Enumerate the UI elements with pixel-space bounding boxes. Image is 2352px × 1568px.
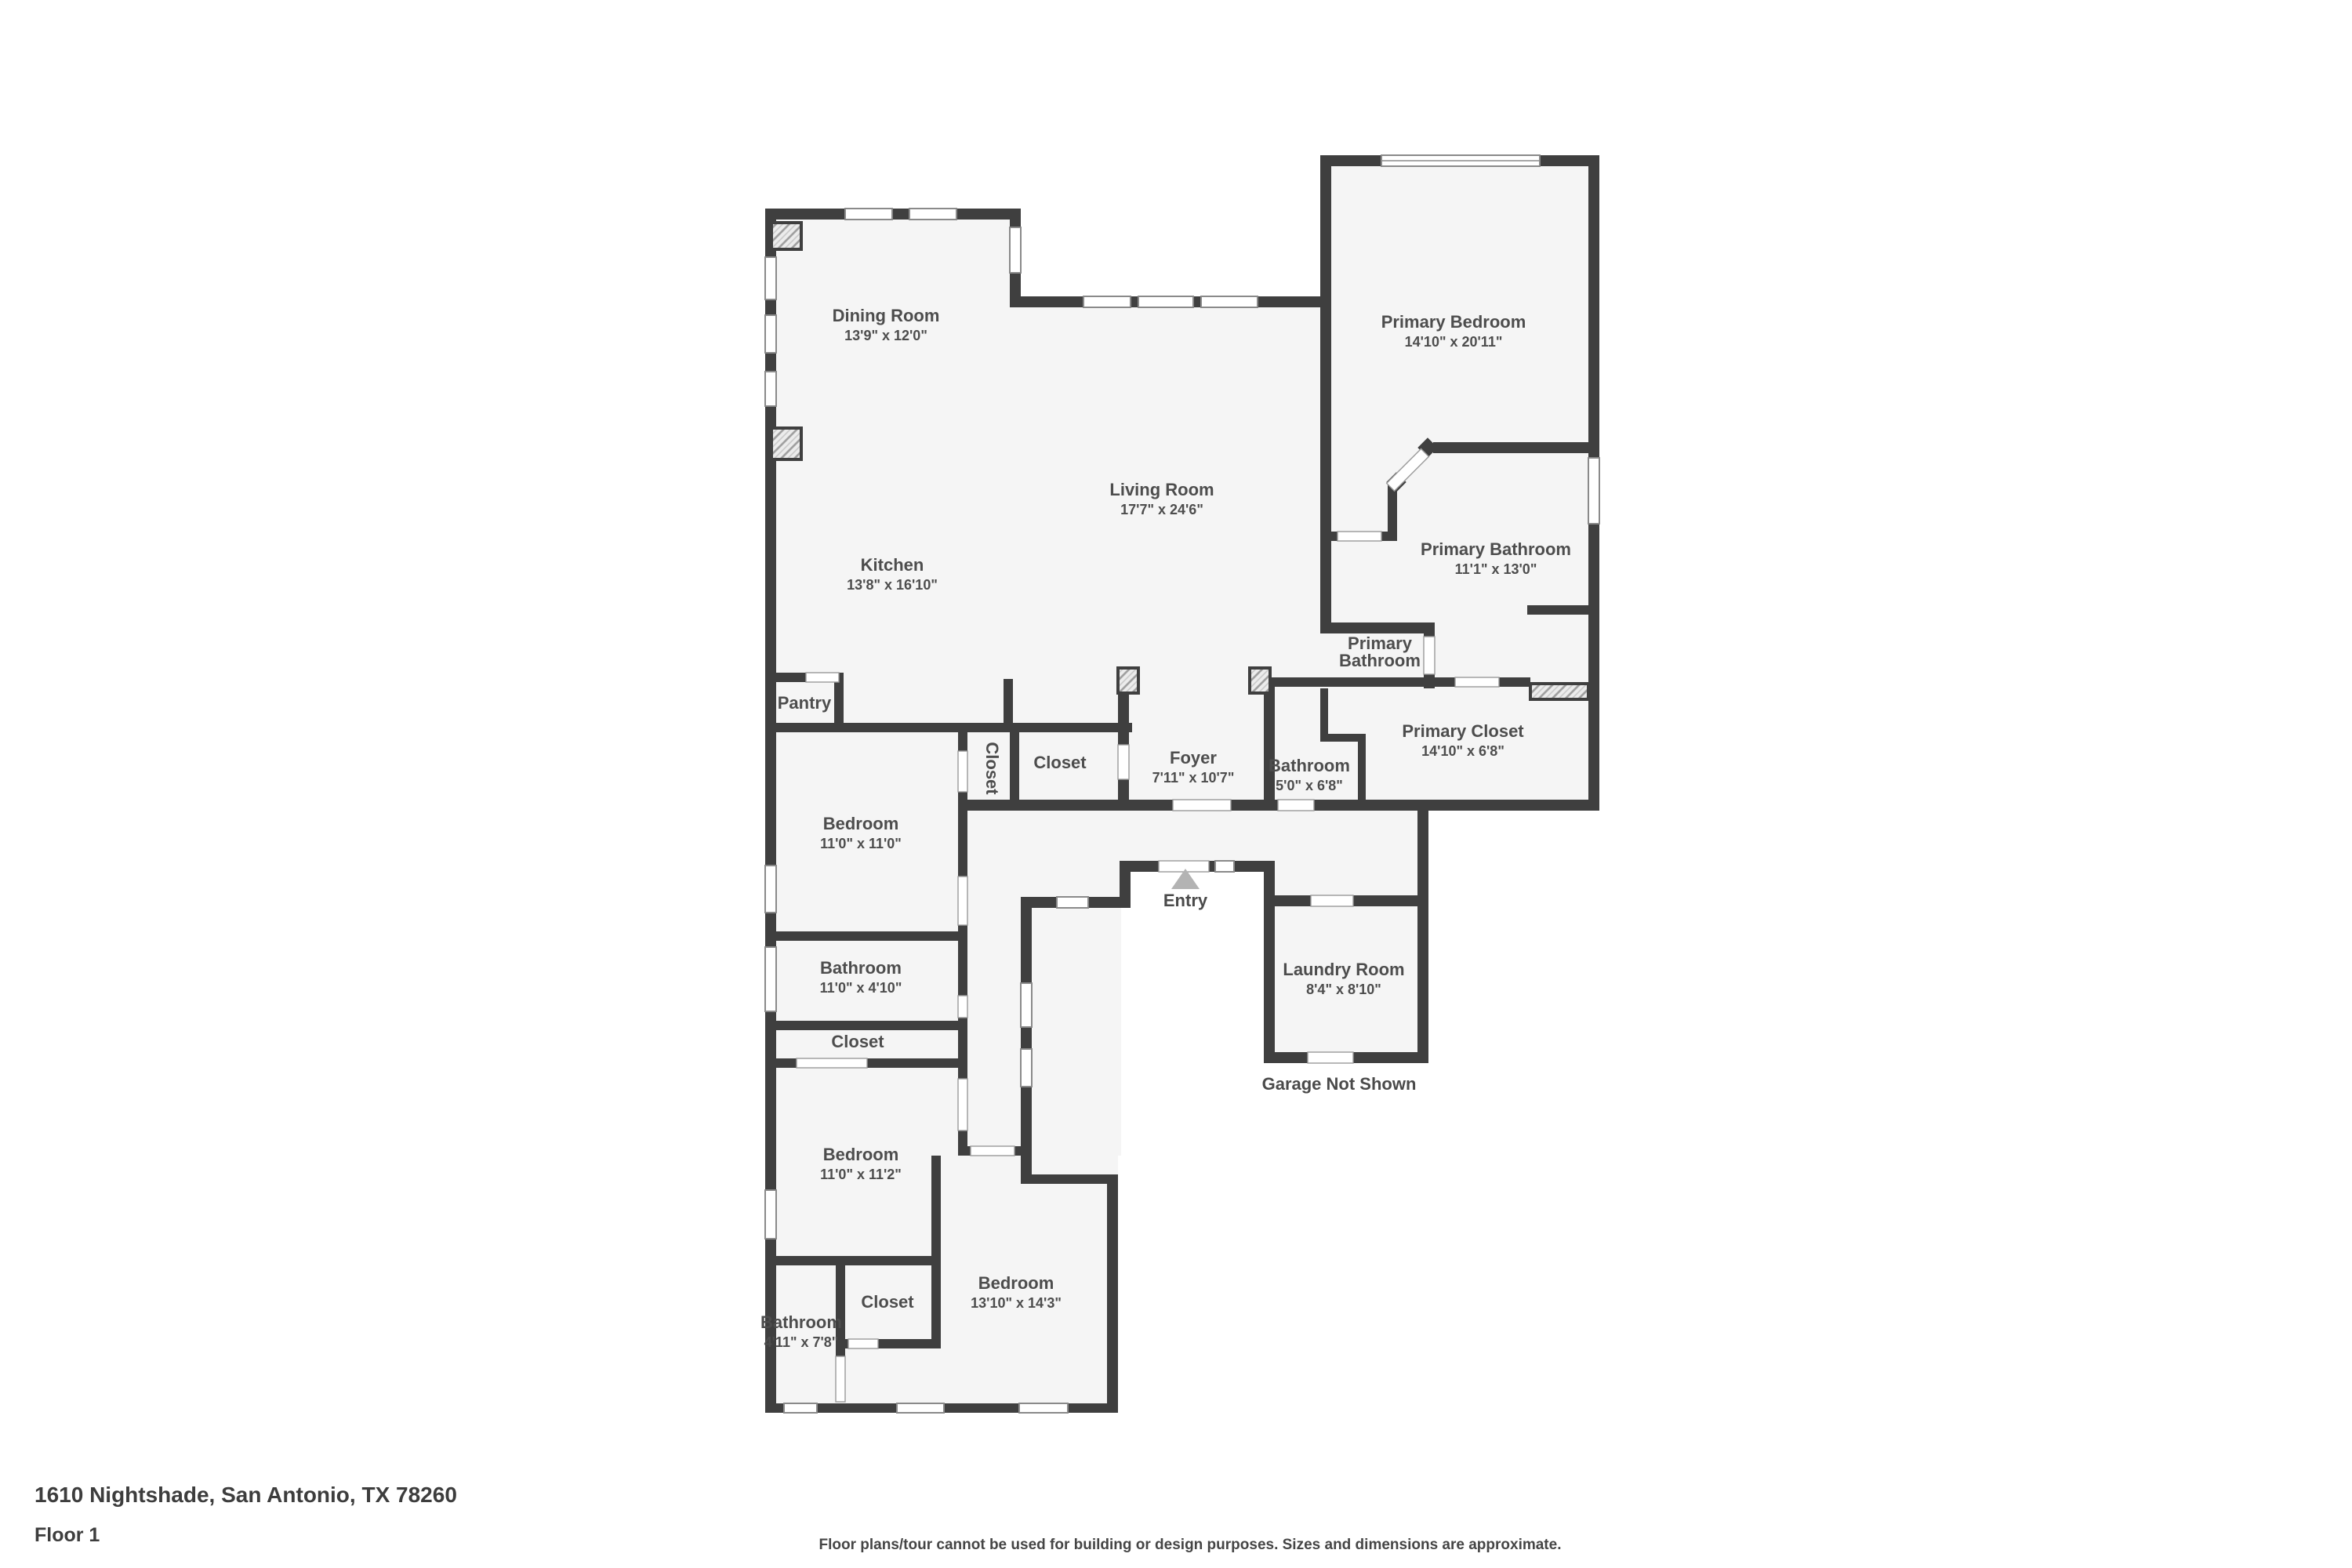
room-dims: 11'1" x 13'0" — [1455, 561, 1537, 577]
room-dims: 11'0" x 11'2" — [820, 1167, 902, 1182]
room-label: Bedroom — [823, 1145, 899, 1164]
room-dims: 13'8" x 16'10" — [847, 577, 938, 593]
room-dims: 11'0" x 4'10" — [820, 980, 902, 996]
room-label: Closet — [861, 1292, 914, 1312]
room-dims: 14'10" x 20'11" — [1405, 334, 1503, 350]
disclaimer-text: Floor plans/tour cannot be used for buil… — [819, 1537, 1562, 1553]
floor-plan: Dining Room13'9" x 12'0"Kitchen13'8" x 1… — [0, 0, 2352, 1568]
floor-label: Floor 1 — [34, 1524, 100, 1546]
fireplace-hatch — [771, 223, 801, 249]
room-dims: 8'4" x 8'10" — [1306, 982, 1381, 997]
fireplace-hatch — [771, 428, 801, 459]
room-label: Living Room — [1109, 480, 1214, 499]
address-text: 1610 Nightshade, San Antonio, TX 78260 — [34, 1483, 457, 1507]
room-dims: 5'0" x 6'8" — [1276, 778, 1343, 793]
room-label: Laundry Room — [1283, 960, 1404, 979]
room-label: Pantry — [778, 693, 832, 713]
room-label: Closet — [831, 1032, 884, 1051]
room-label: Bathroom — [760, 1312, 842, 1332]
door-jamb-hatch — [1250, 668, 1270, 693]
room-label: Primary Bathroom — [1421, 539, 1571, 559]
room-label: Primary Closet — [1402, 721, 1524, 741]
room-label: Bathroom — [820, 958, 902, 978]
door-jamb-hatch — [1118, 668, 1138, 693]
room-label: Closet — [982, 742, 1002, 795]
room-label: Closet — [1033, 753, 1087, 772]
room-dims: 17'7" x 24'6" — [1120, 502, 1203, 517]
room-label: Kitchen — [861, 555, 924, 575]
room-dims: 14'10" x 6'8" — [1421, 743, 1504, 759]
room-label: Dining Room — [833, 306, 940, 325]
annotation-label: Garage Not Shown — [1262, 1074, 1417, 1094]
room-dims: 4'11" x 7'8" — [764, 1334, 839, 1350]
room-dims: 13'10" x 14'3" — [971, 1295, 1062, 1311]
annotation-label: Entry — [1163, 891, 1208, 910]
room-dims: 11'0" x 11'0" — [820, 836, 902, 851]
builtin-hatch — [1530, 684, 1588, 699]
room-label: Bedroom — [978, 1273, 1054, 1293]
room-dims: 7'11" x 10'7" — [1152, 770, 1235, 786]
room-label: Foyer — [1170, 748, 1217, 768]
room-label: Primary Bedroom — [1381, 312, 1526, 332]
room-label: Bathroom — [1339, 651, 1421, 670]
room-label: Bedroom — [823, 814, 899, 833]
room-dims: 13'9" x 12'0" — [844, 328, 927, 343]
room-label: Bathroom — [1269, 756, 1350, 775]
